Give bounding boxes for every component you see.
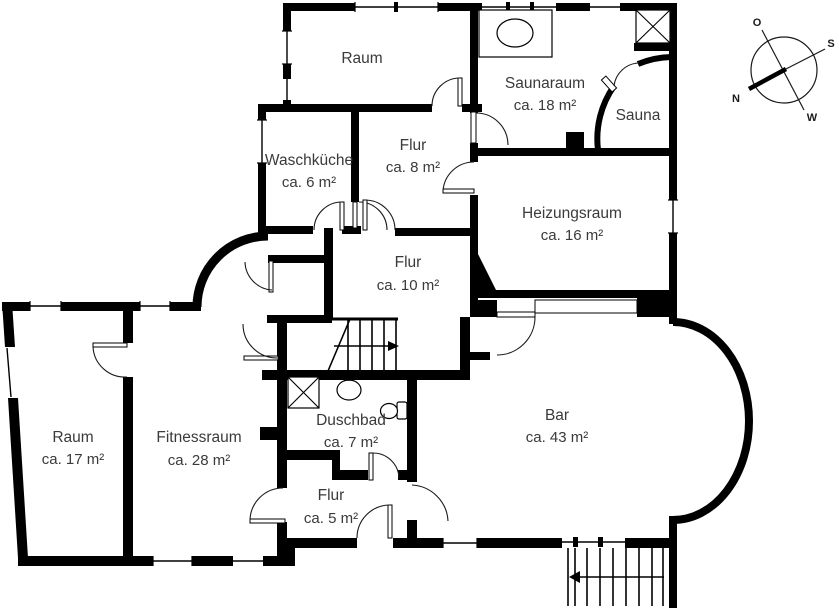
room-area: ca. 17 m² (42, 451, 105, 468)
room-area: ca. 43 m² (526, 429, 589, 446)
room-name: Waschküche (265, 152, 353, 169)
room-label-flur-unten: Flur ca. 5 m² (304, 487, 358, 527)
compass-east-label: O (753, 17, 762, 29)
room-label-heizungsraum: Heizungsraum ca. 16 m² (522, 205, 622, 244)
shower-sauna-icon (634, 10, 673, 51)
room-name: Saunaraum (505, 75, 585, 92)
room-area: ca. 28 m² (168, 452, 231, 469)
room-area: ca. 16 m² (541, 227, 604, 244)
shower-duschbad-icon (288, 377, 319, 408)
room-label-waschkueche: Waschküche ca. 6 m² (265, 152, 353, 191)
room-name: Flur (395, 254, 422, 271)
room-name: Raum (341, 50, 382, 67)
room-label-raum-links: Raum ca. 17 m² (42, 429, 105, 468)
room-name: Fitnessraum (156, 429, 241, 446)
floorplan-page: Raum Saunaraum ca. 18 m² Sauna Waschküch… (0, 0, 839, 610)
room-area: ca. 10 m² (377, 277, 440, 294)
exterior-stairs (568, 548, 664, 606)
sink-icon (337, 377, 361, 400)
compass-west-label: W (807, 112, 818, 124)
room-area: ca. 5 m² (304, 510, 358, 527)
room-name: Bar (545, 407, 569, 424)
room-label-flur-mitte: Flur ca. 10 m² (377, 254, 440, 294)
room-label-raum-top: Raum (341, 50, 382, 67)
room-name: Flur (318, 487, 345, 504)
room-name: Raum (52, 429, 93, 446)
room-name: Duschbad (316, 412, 386, 429)
walls (2, 3, 749, 608)
room-label-saunaraum: Saunaraum ca. 18 m² (505, 75, 585, 114)
room-area: ca. 6 m² (282, 174, 336, 191)
room-label-fitnessraum: Fitnessraum ca. 28 m² (156, 429, 241, 469)
room-area: ca. 18 m² (514, 97, 577, 114)
compass-north-label: N (732, 93, 740, 105)
room-label-bar: Bar ca. 43 m² (526, 407, 589, 446)
room-name: Flur (400, 137, 427, 154)
room-label-duschbad: Duschbad ca. 7 m² (316, 412, 386, 451)
room-label-flur-og: Flur ca. 8 m² (386, 137, 440, 176)
whirlpool-tub-icon (479, 10, 552, 57)
compass-rose-icon: O S N W (732, 17, 835, 124)
interior-stairs (328, 319, 399, 371)
room-area: ca. 7 m² (324, 434, 378, 451)
compass-south-label: S (827, 38, 834, 50)
room-label-sauna: Sauna (616, 107, 661, 124)
room-area: ca. 8 m² (386, 159, 440, 176)
room-name: Heizungsraum (522, 205, 622, 222)
floorplan-canvas: Raum Saunaraum ca. 18 m² Sauna Waschküch… (0, 0, 839, 610)
room-name: Sauna (616, 107, 661, 124)
